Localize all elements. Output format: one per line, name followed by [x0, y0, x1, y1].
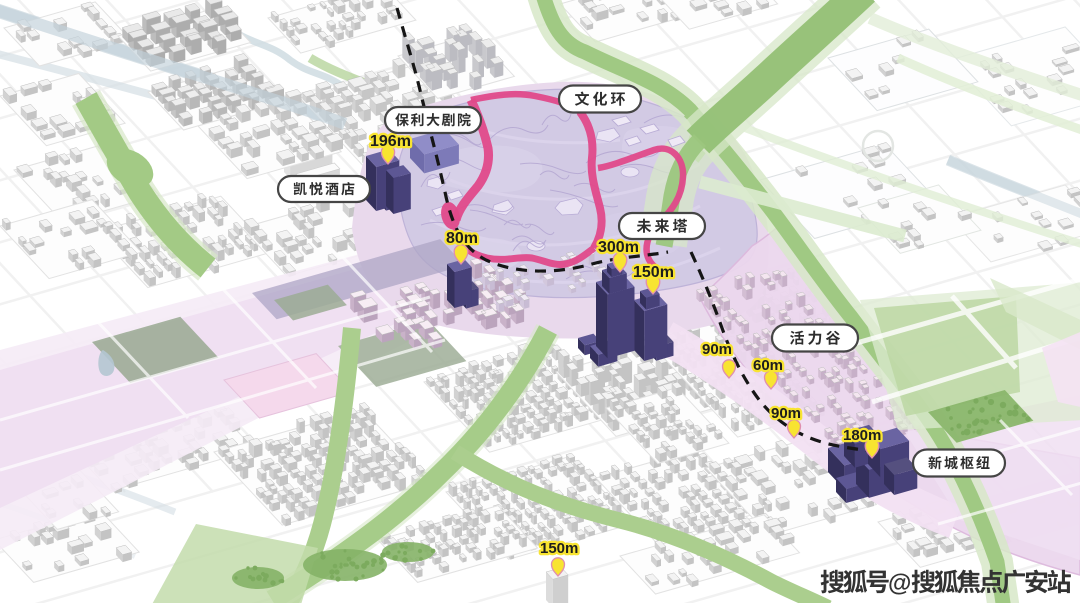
- svg-text:@: @: [888, 570, 911, 597]
- svg-text:300m: 300m: [598, 239, 639, 256]
- svg-text:80m: 80m: [446, 230, 478, 247]
- svg-text:60m: 60m: [753, 357, 783, 374]
- svg-text:180m: 180m: [843, 427, 881, 444]
- svg-text:90m: 90m: [771, 405, 801, 422]
- svg-text:196m: 196m: [370, 133, 411, 150]
- svg-text:150m: 150m: [633, 264, 674, 281]
- svg-text:90m: 90m: [702, 341, 732, 358]
- svg-text:150m: 150m: [540, 540, 578, 557]
